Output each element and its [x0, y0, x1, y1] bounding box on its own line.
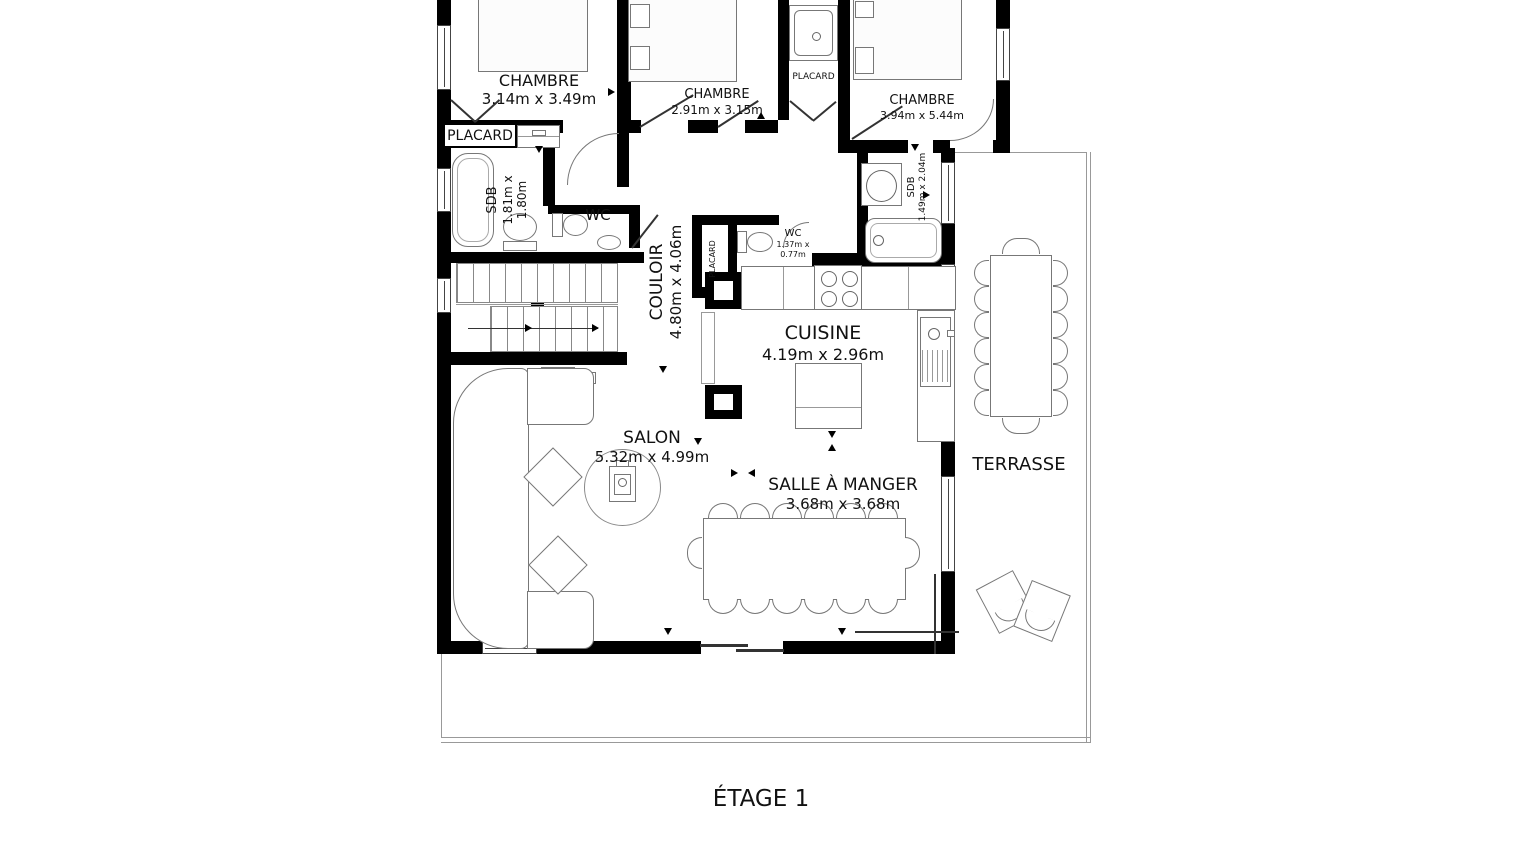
- toilet-tank: [552, 213, 563, 237]
- nightstand-icon: [630, 4, 650, 28]
- sofa-icon: [527, 368, 594, 425]
- sliding-door: [700, 644, 748, 647]
- sink-faucet: [928, 328, 940, 340]
- stairs-arrow: [525, 324, 532, 332]
- folding-door: [812, 101, 836, 122]
- chair-icon: [836, 599, 866, 614]
- sofa-icon: [527, 591, 594, 649]
- shower-drain: [812, 32, 821, 41]
- railing: [855, 631, 959, 633]
- chair-icon: [740, 599, 770, 614]
- bathtub-faucet: [873, 235, 884, 246]
- chair-icon: [1002, 238, 1040, 254]
- floor-plan: CHAMBRE 3.14m x 3.49m CHAMBRE 2.91m x 3.…: [0, 0, 1527, 859]
- room-label-cuisine: CUISINE 4.19m x 2.96m: [723, 322, 923, 364]
- window: [996, 28, 1010, 81]
- room-label-chambre-3: CHAMBRE 3.94m x 5.44m: [842, 93, 1002, 122]
- chair-icon: [974, 364, 989, 390]
- chair-icon: [1053, 312, 1068, 338]
- room-label-chambre-2: CHAMBRE 2.91m x 3.15m: [637, 87, 797, 117]
- door-arc: [567, 133, 619, 185]
- chair-icon: [687, 537, 702, 569]
- chair-icon: [974, 338, 989, 364]
- stairs-direction-line: [468, 328, 598, 329]
- chair-icon: [905, 537, 920, 569]
- chair-icon: [974, 312, 989, 338]
- nightstand-icon: [855, 1, 874, 18]
- chair-icon: [804, 599, 834, 614]
- chair-icon: [1002, 418, 1040, 434]
- sliding-door: [736, 649, 784, 652]
- nightstand-icon: [855, 47, 874, 74]
- chair-icon: [1053, 390, 1068, 416]
- sink-drainer: [922, 350, 949, 382]
- side-table-icon: [528, 535, 587, 594]
- window: [437, 278, 451, 313]
- room-label-chambre-1: CHAMBRE 3.14m x 3.49m: [439, 71, 639, 108]
- room-label-sdb-right: SDB 1.49m x 2.04m: [906, 130, 936, 244]
- chair-icon: [1053, 338, 1068, 364]
- plan-title: ÉTAGE 1: [611, 786, 911, 814]
- room-label-salle-a-manger: SALLE À MANGER 3.68m x 3.68m: [723, 475, 963, 513]
- room-label-wc-mid: WC 1.37m x 0.77m: [763, 228, 823, 259]
- room-label-salon: SALON 5.32m x 4.99m: [552, 428, 752, 466]
- terrace-table: [990, 255, 1052, 417]
- dining-table: [703, 518, 906, 600]
- room-label-placard-mid: PLACARD: [708, 224, 720, 294]
- room-label-terrasse: TERRASSE: [939, 454, 1099, 476]
- sofa-icon: [453, 368, 529, 649]
- chair-icon: [772, 599, 802, 614]
- nightstand-icon: [630, 46, 650, 70]
- window: [941, 162, 955, 224]
- stairs-arrow: [592, 324, 599, 332]
- room-label-couloir: COULOIR 4.80m x 4.06m: [647, 197, 689, 367]
- room-label-placard-top: PLACARD: [789, 72, 838, 83]
- dresser-handle: [532, 130, 546, 136]
- room-label-sdb-left: SDB 1.81m x 1.80m: [485, 154, 537, 246]
- kitchen-island: [795, 363, 862, 429]
- chair-icon: [868, 599, 898, 614]
- bed-icon: [478, 0, 588, 72]
- chair-icon: [974, 390, 989, 416]
- chair-icon: [1053, 286, 1068, 312]
- room-label-wc-left: WC: [568, 206, 628, 224]
- chair-icon: [708, 599, 738, 614]
- chair-icon: [1053, 260, 1068, 286]
- room-label-placard-left: PLACARD: [443, 123, 517, 148]
- toilet-tank: [737, 231, 747, 253]
- window: [437, 168, 451, 212]
- chair-icon: [1053, 364, 1068, 390]
- railing: [934, 574, 936, 654]
- chair-icon: [974, 286, 989, 312]
- chair-icon: [974, 260, 989, 286]
- sink-icon: [597, 235, 621, 250]
